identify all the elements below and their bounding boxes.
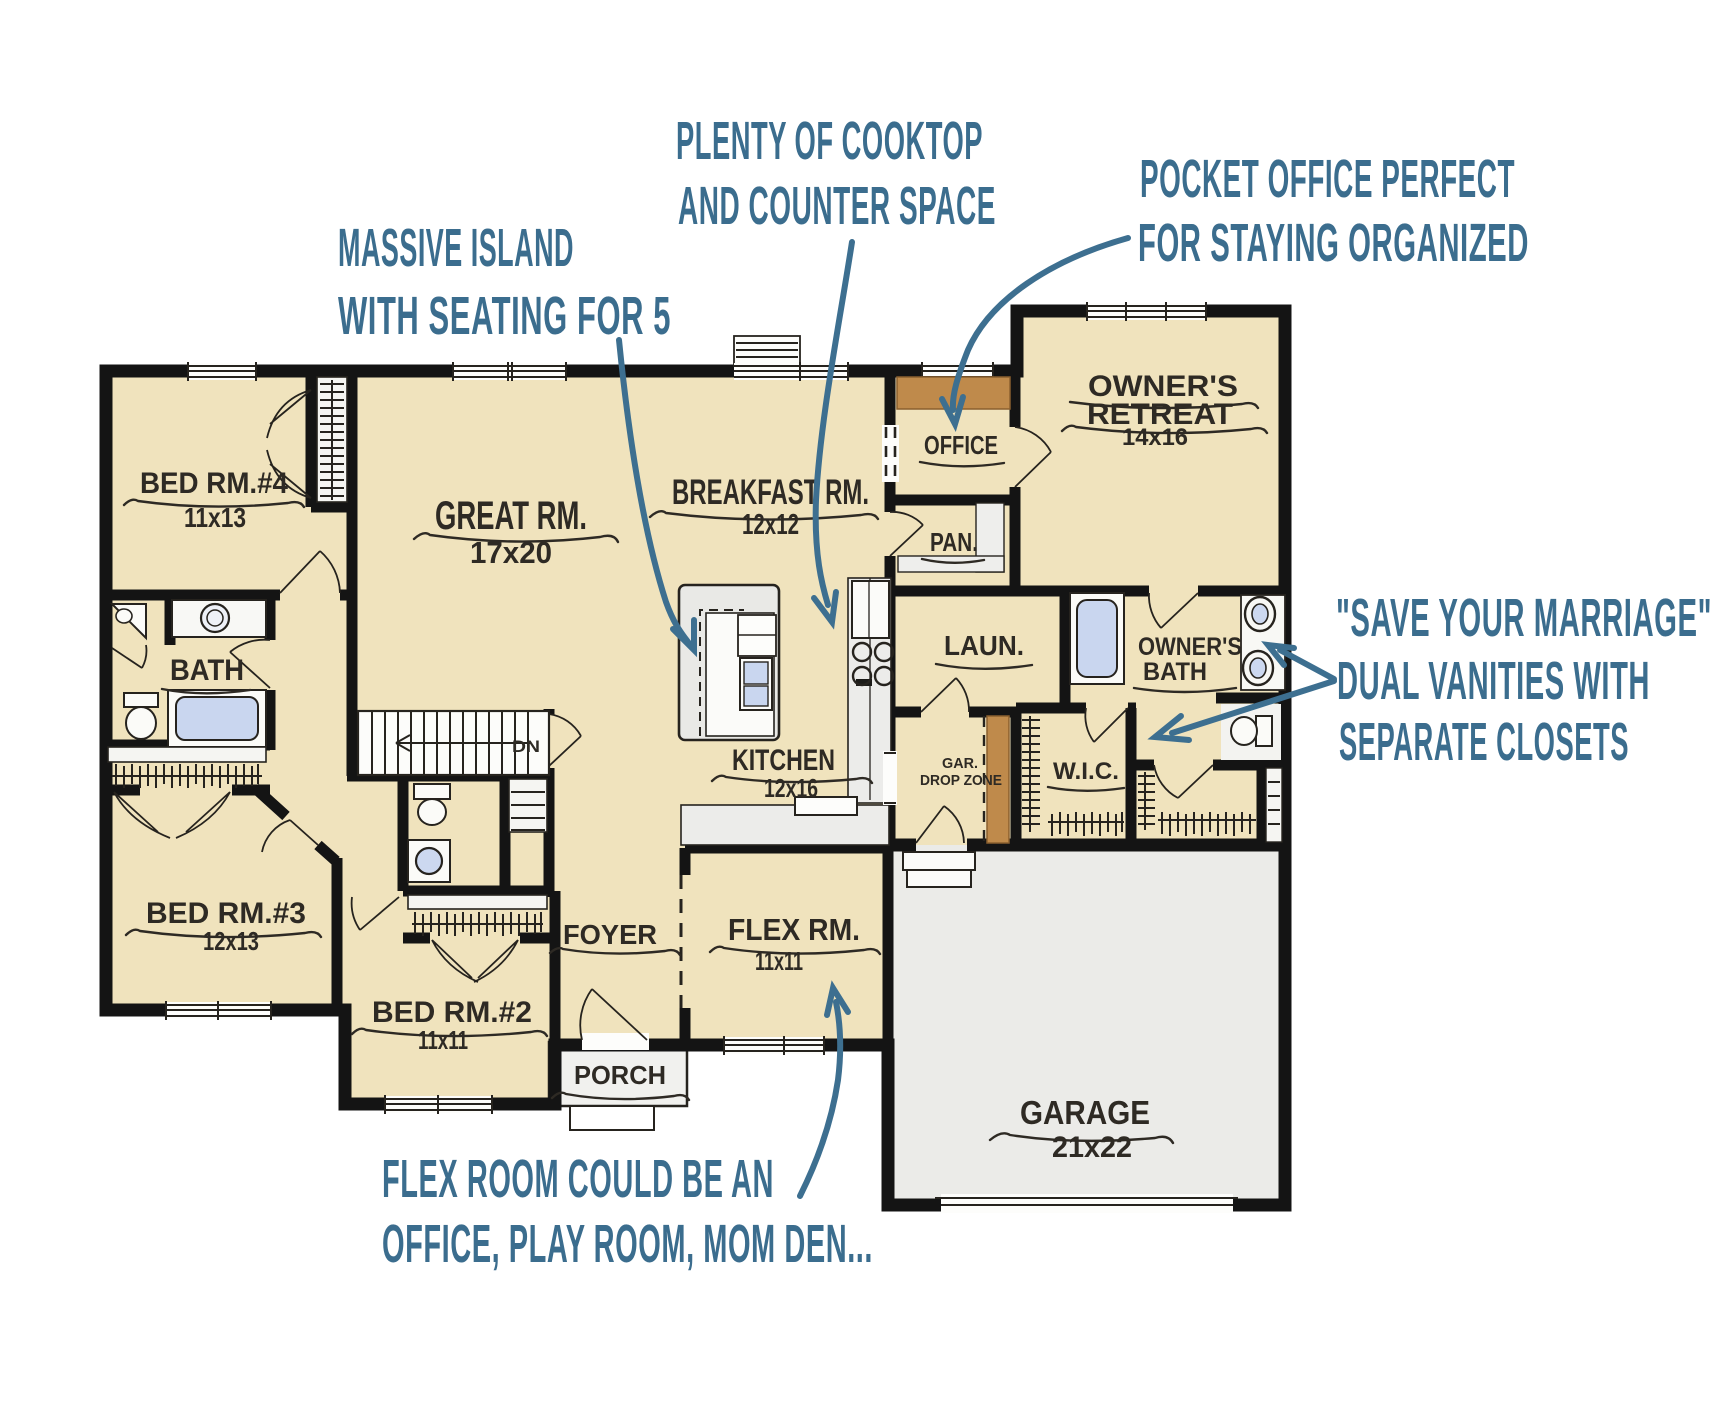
svg-text:PORCH: PORCH [574,1060,666,1090]
svg-text:11x11: 11x11 [418,1025,468,1055]
svg-text:FOYER: FOYER [563,919,657,950]
svg-text:FLEX RM.: FLEX RM. [728,912,860,947]
svg-text:OFFICE: OFFICE [924,430,998,460]
svg-text:14x16: 14x16 [1122,424,1188,451]
svg-text:BATH: BATH [170,654,244,687]
svg-text:FOR STAYING ORGANIZED: FOR STAYING ORGANIZED [1138,213,1529,273]
svg-text:GARAGE: GARAGE [1020,1094,1150,1131]
svg-text:DUAL VANITIES WITH: DUAL VANITIES WITH [1337,651,1650,711]
svg-text:WITH SEATING FOR 5: WITH SEATING FOR 5 [338,286,671,346]
svg-text:BREAKFAST RM.: BREAKFAST RM. [672,473,869,512]
svg-text:FLEX ROOM COULD BE AN: FLEX ROOM COULD BE AN [382,1149,774,1209]
svg-text:GAR.: GAR. [942,755,978,772]
svg-text:PLENTY OF COOKTOP: PLENTY OF COOKTOP [676,111,983,171]
svg-text:11x11: 11x11 [755,946,803,976]
svg-text:DROP ZONE: DROP ZONE [920,772,1002,789]
svg-text:12x16: 12x16 [764,773,818,803]
svg-text:12x13: 12x13 [203,926,259,956]
svg-text:GREAT RM.: GREAT RM. [435,494,587,538]
svg-text:W.I.C.: W.I.C. [1053,758,1119,785]
svg-text:"SAVE YOUR MARRIAGE": "SAVE YOUR MARRIAGE" [1336,588,1712,648]
svg-text:POCKET OFFICE PERFECT: POCKET OFFICE PERFECT [1140,149,1515,209]
svg-text:DN: DN [512,737,540,756]
svg-text:OWNER'S: OWNER'S [1138,633,1242,661]
svg-text:21x22: 21x22 [1052,1131,1132,1164]
svg-text:BATH: BATH [1143,658,1207,686]
svg-text:11x13: 11x13 [184,502,246,533]
svg-text:MASSIVE ISLAND: MASSIVE ISLAND [338,218,574,278]
svg-text:12x12: 12x12 [742,509,799,541]
svg-text:PAN.: PAN. [930,527,978,557]
svg-text:AND COUNTER SPACE: AND COUNTER SPACE [678,176,996,236]
svg-text:17x20: 17x20 [470,535,552,570]
svg-text:LAUN.: LAUN. [944,630,1024,661]
svg-text:SEPARATE CLOSETS: SEPARATE CLOSETS [1339,712,1629,772]
svg-text:BED RM.#4: BED RM.#4 [140,467,288,500]
svg-text:OFFICE, PLAY ROOM, MOM DEN...: OFFICE, PLAY ROOM, MOM DEN... [382,1214,873,1274]
